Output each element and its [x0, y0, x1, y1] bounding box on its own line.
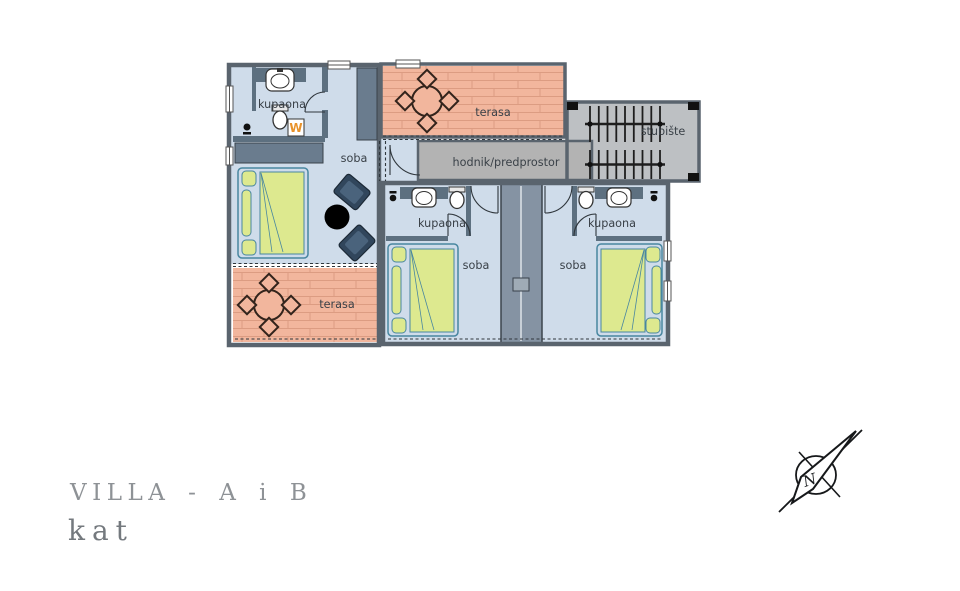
label-soba-b: soba: [463, 259, 490, 272]
vent-b: [390, 191, 397, 201]
window-left-1: [226, 86, 233, 112]
toilet-c: [578, 187, 594, 209]
sink-b: [412, 188, 436, 207]
bed-c: [597, 244, 662, 336]
sink-c: [607, 188, 631, 207]
entry-area: [377, 139, 418, 184]
label-kupaona-c: kupaona: [588, 217, 636, 230]
label-terasa-top: terasa: [475, 106, 510, 119]
washer-a: W: [288, 119, 304, 136]
drain-a: [243, 124, 251, 135]
label-kupaona-a: kupaona: [258, 98, 306, 111]
label-kupaona-b: kupaona: [418, 217, 466, 230]
window-right-2: [664, 281, 671, 301]
window-right-1: [664, 241, 671, 261]
window-terrace-top: [396, 60, 420, 68]
sink-a: [266, 68, 294, 91]
vent-c: [651, 191, 658, 201]
floor-plan-page: W: [0, 0, 960, 591]
wardrobe-b: [357, 68, 377, 140]
floor-plan-svg: W: [0, 0, 960, 591]
central-shaft: [501, 184, 542, 343]
round-table-black: [325, 205, 350, 230]
window-top-a: [328, 61, 350, 69]
label-soba-a: soba: [341, 152, 368, 165]
title-project: VILLA - A i B: [69, 480, 312, 506]
washer-symbol: W: [289, 121, 302, 135]
title-floor: kat: [68, 514, 134, 547]
window-left-2: [226, 147, 233, 165]
bed-b: [388, 244, 458, 336]
toilet-b: [449, 187, 465, 209]
label-soba-c: soba: [560, 259, 587, 272]
wardrobe-a: [235, 143, 323, 163]
north-compass-icon: N: [779, 430, 862, 512]
label-stubiste: stubište: [641, 125, 686, 138]
drawing-title: VILLA - A i B kat: [68, 480, 312, 547]
label-terasa-bottom: terasa: [319, 298, 354, 311]
bed-a: [238, 168, 308, 258]
label-hodnik: hodnik/predprostor: [453, 156, 560, 169]
